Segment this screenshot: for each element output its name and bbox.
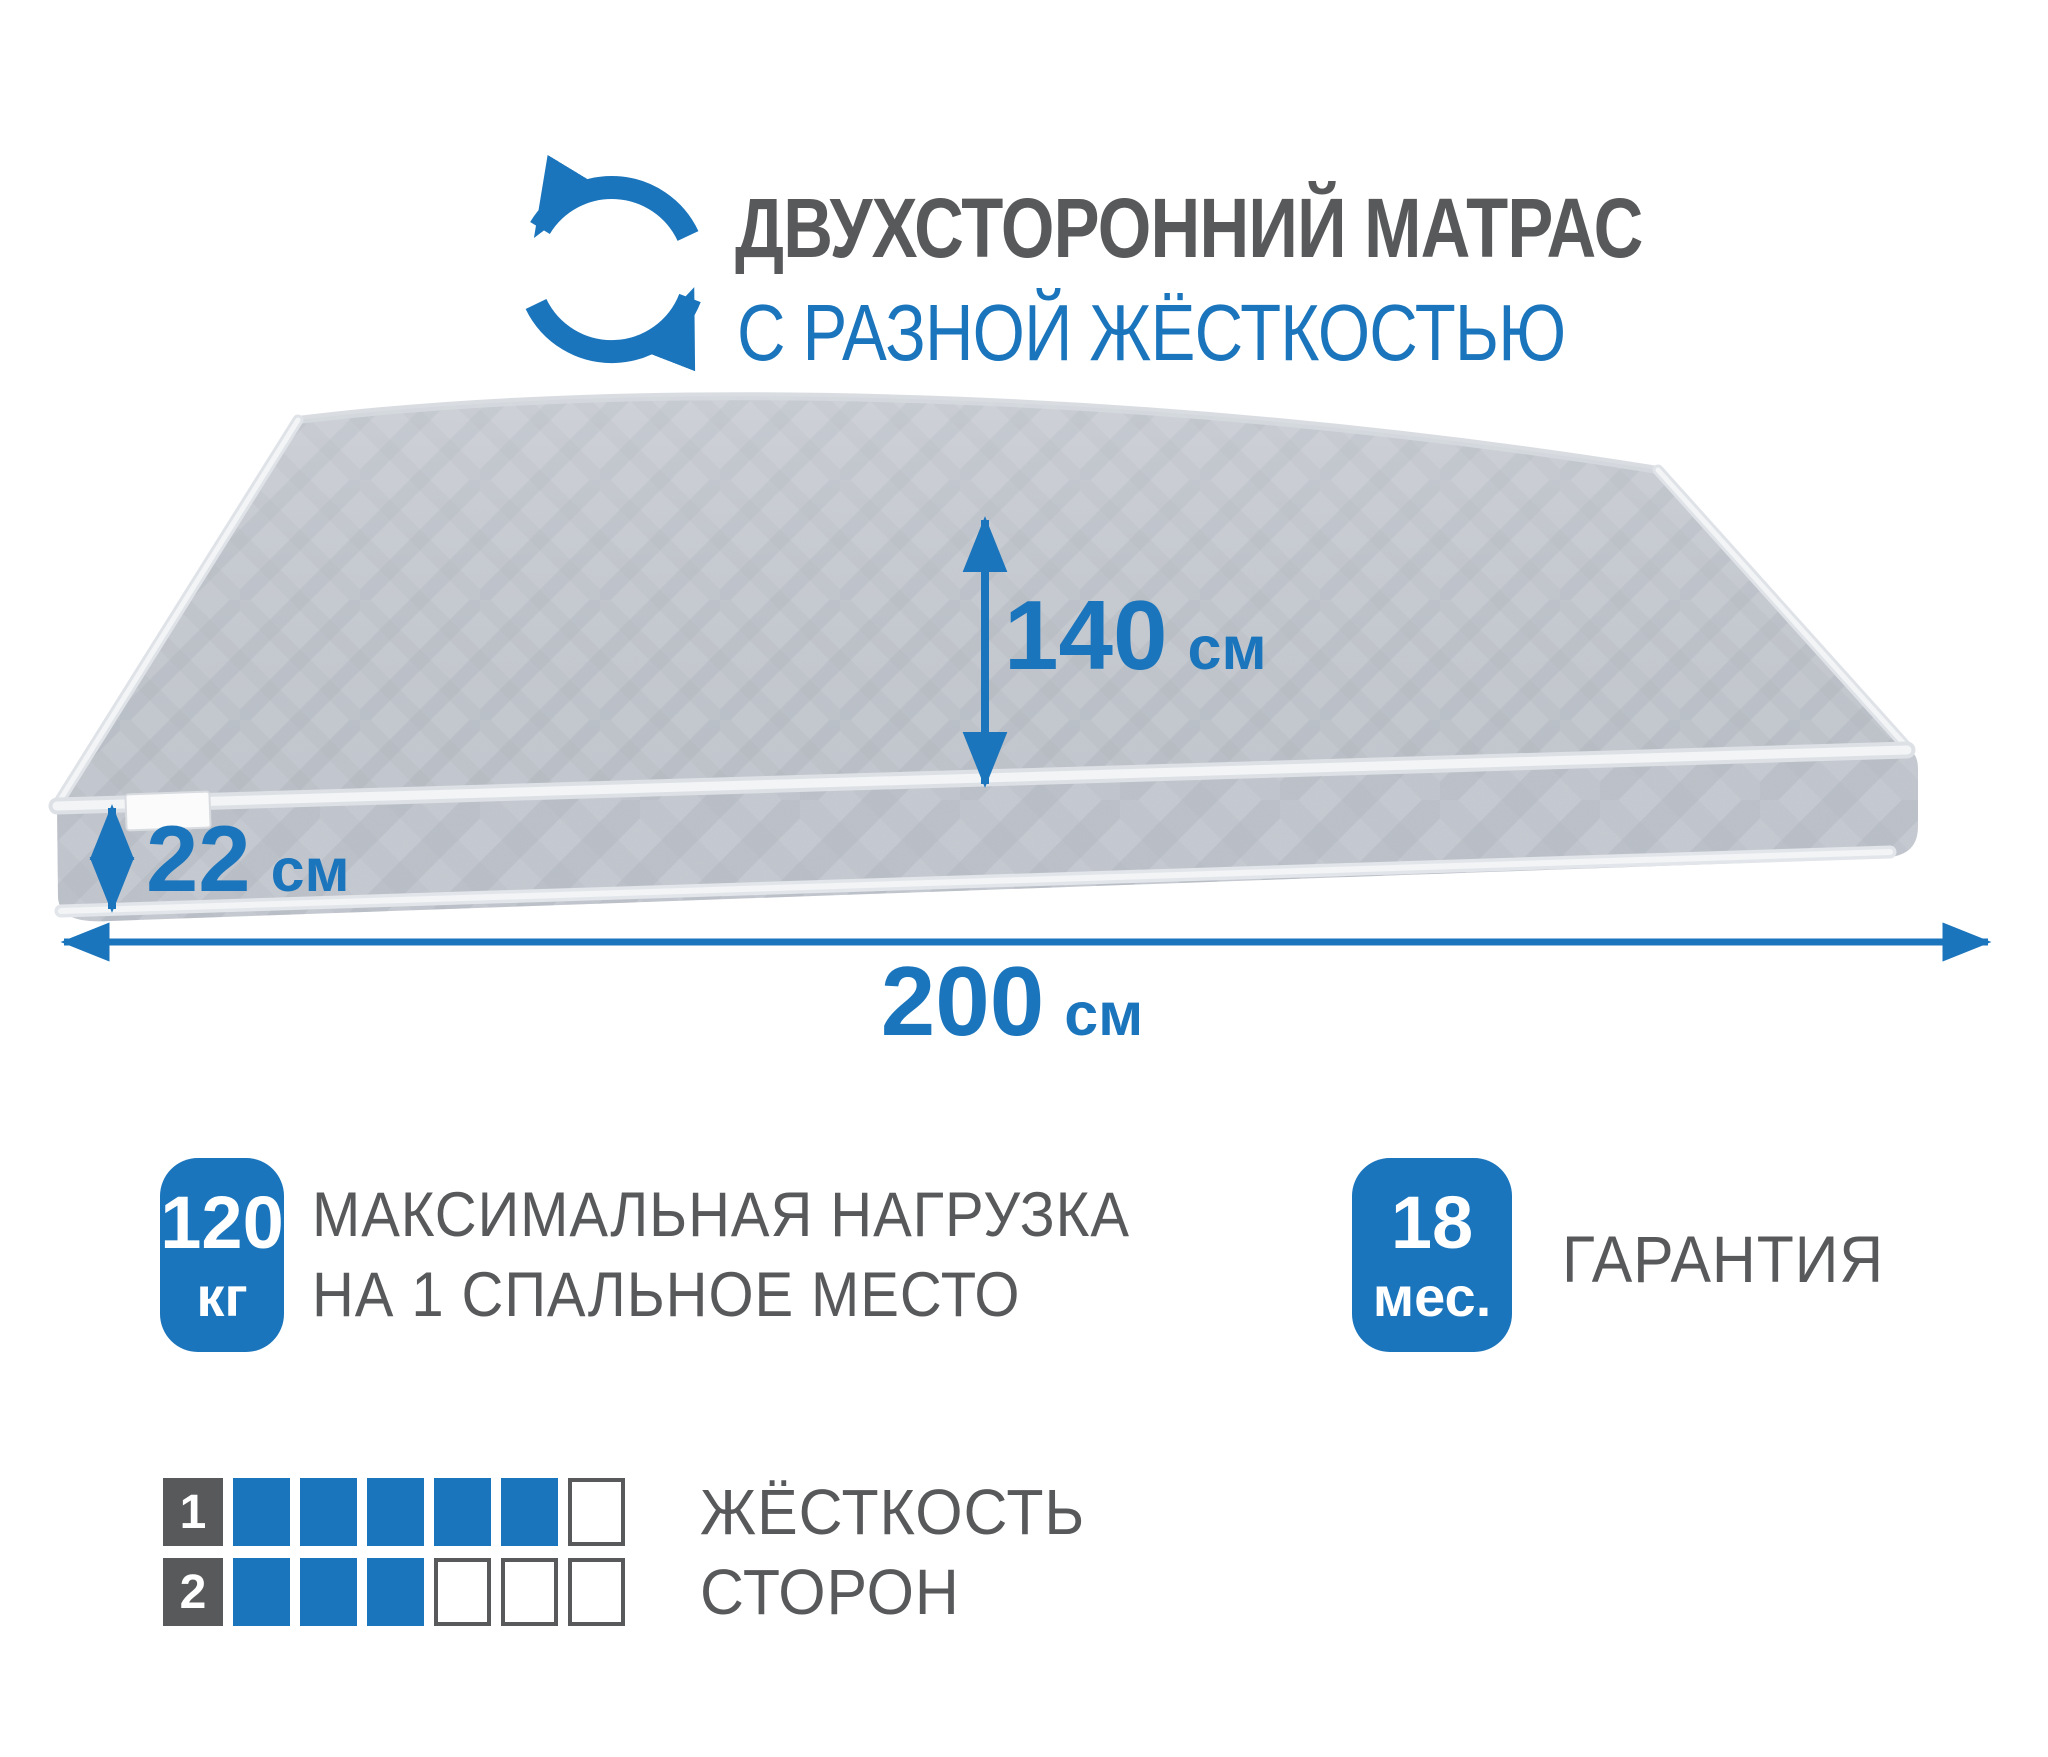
firmness-caption-line1: ЖЁСТКОСТЬ [700, 1478, 1085, 1546]
mattress-infographic: { "colors": { "accent_blue": "#1b75bc", … [0, 0, 2048, 1757]
length-value: 200 [881, 952, 1045, 1050]
firmness-cell-filled [501, 1478, 558, 1546]
warranty-unit: мес. [1352, 1265, 1512, 1329]
thickness-unit: см [271, 840, 350, 901]
page-subtitle: С РАЗНОЙ ЖЁСТКОСТЬЮ [737, 287, 1565, 379]
firmness-side2-cells [233, 1558, 625, 1626]
warranty-value: 18 [1352, 1181, 1512, 1265]
max-load-badge: 120 кг [160, 1158, 284, 1352]
firmness-cell-filled [367, 1558, 424, 1626]
firmness-row-side2: 2 [163, 1558, 625, 1626]
max-load-value: 120 [160, 1181, 284, 1265]
firmness-cell-filled [300, 1558, 357, 1626]
firmness-cell-filled [233, 1478, 290, 1546]
width-dimension-label: 140 см [1004, 586, 1267, 684]
max-load-line1: МАКСИМАЛЬНАЯ НАГРУЗКА [312, 1175, 1130, 1255]
warranty-badge: 18 мес. [1352, 1158, 1512, 1352]
max-load-line2: НА 1 СПАЛЬНОЕ МЕСТО [312, 1255, 1130, 1335]
firmness-cell-filled [233, 1558, 290, 1626]
firmness-side1-cells [233, 1478, 625, 1546]
warranty-label: ГАРАНТИЯ [1562, 1226, 1884, 1292]
page-title: ДВУХСТОРОННИЙ МАТРАС [735, 180, 1643, 277]
firmness-cell-empty [501, 1558, 558, 1626]
firmness-cell-empty [568, 1478, 625, 1546]
firmness-cell-empty [568, 1558, 625, 1626]
firmness-side2-label: 2 [163, 1558, 223, 1626]
width-value: 140 [1004, 586, 1168, 684]
width-unit: см [1188, 618, 1267, 679]
max-load-unit: кг [160, 1265, 284, 1329]
firmness-cell-filled [300, 1478, 357, 1546]
firmness-cell-filled [367, 1478, 424, 1546]
firmness-row-side1: 1 [163, 1478, 625, 1546]
thickness-value: 22 [146, 812, 251, 906]
length-unit: см [1064, 984, 1143, 1045]
firmness-cell-filled [434, 1478, 491, 1546]
firmness-caption-line2: СТОРОН [700, 1558, 960, 1626]
firmness-side1-label: 1 [163, 1478, 223, 1546]
length-dimension-label: 200 см [462, 952, 1562, 1050]
max-load-description: МАКСИМАЛЬНАЯ НАГРУЗКА НА 1 СПАЛЬНОЕ МЕСТ… [312, 1175, 1130, 1335]
rotate-arrows-icon [536, 187, 690, 351]
firmness-cell-empty [434, 1558, 491, 1626]
thickness-dimension-label: 22 см [146, 812, 350, 906]
